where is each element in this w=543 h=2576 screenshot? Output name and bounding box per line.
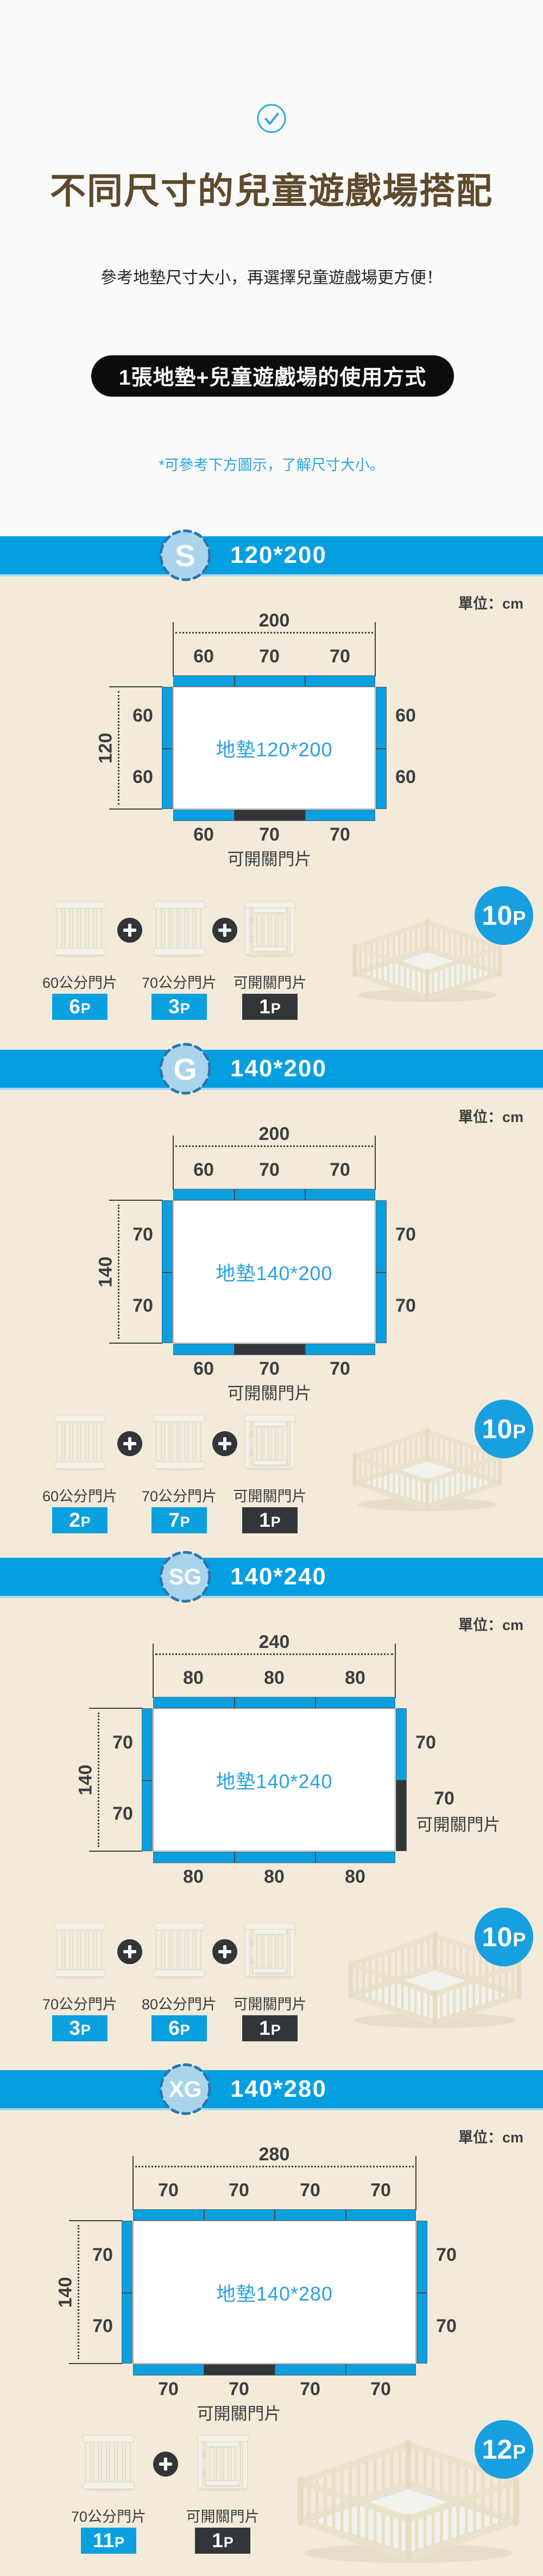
part-count-badge: 3P [52, 2015, 108, 2041]
part-count-number: 7 [168, 1507, 180, 1533]
section-body-xg: 單位：cm28070707070地墊140*280707070701407070… [0, 2110, 543, 2576]
page-title: 不同尺寸的兒童遊戲場搭配 [0, 162, 543, 214]
fence-bar-divider [305, 810, 306, 820]
fence-panel-icon [53, 1922, 107, 1979]
mat-size-label: 地墊140*280 [216, 2278, 333, 2307]
top-segment-label: 70 [158, 2180, 179, 2201]
left-dimension-tick-bottom [69, 2363, 122, 2364]
part-count-badge: 1P [195, 2528, 250, 2554]
section-s: S120*200單位：cm200607070地墊120*200606060601… [0, 536, 543, 1050]
size-badge-xg: XG [157, 2061, 213, 2117]
mat-rect: 地墊140*240 [153, 1708, 395, 1851]
fence-panel-icon [152, 1414, 206, 1471]
fence-door-icon [243, 1922, 297, 1979]
part-count-number: 1 [259, 994, 270, 1020]
unit-label: 單位：cm [458, 2126, 523, 2147]
right-fence-bar [376, 1200, 387, 1343]
part-count-suffix: P [180, 2017, 190, 2043]
part-count-badge: 11P [81, 2528, 136, 2554]
fence-bar-divider [122, 2292, 132, 2293]
size-badge-g: G [157, 1041, 213, 1096]
bottom-segment-label: 70 [370, 2379, 391, 2400]
top-dimension-total: 280 [259, 2144, 290, 2165]
top-dimension-dotted-line [175, 1145, 373, 1147]
left-segment-label: 70 [92, 2316, 113, 2337]
total-panel-count-badge: 10P [475, 1908, 533, 1966]
right-segment-label: 70 [436, 2316, 457, 2337]
size-badge-letter: XG [157, 2061, 213, 2117]
part-count-suffix: P [271, 1509, 281, 1535]
fence-bar-divider [376, 748, 386, 749]
top-segment-label: 70 [300, 2180, 320, 2201]
total-count-number: 10 [482, 886, 513, 945]
unit-label: 單位：cm [458, 1613, 523, 1634]
section-band-g: G140*200 [0, 1050, 543, 1090]
fence-bar-divider [417, 2292, 427, 2293]
size-badge-letter: SG [157, 1549, 213, 1604]
left-dimension-total: 120 [96, 733, 117, 764]
product-infographic-page: 不同尺寸的兒童遊戲場搭配 參考地墊尺寸大小，再選擇兒童遊戲場更方便！ 1張地墊+… [0, 0, 543, 2576]
section-body-s: 單位：cm200607070地墊120*20060606060120607070… [0, 576, 543, 1050]
fence-bar-divider [305, 676, 306, 686]
usage-pill: 1張地墊+兒童遊戲場的使用方式 [91, 355, 454, 397]
part-count-suffix: P [81, 995, 91, 1021]
top-dimension-tick-right [415, 2156, 416, 2210]
top-dimension-tick-right [395, 1644, 396, 1698]
part-count-number: 6 [69, 994, 80, 1020]
size-badge-letter: S [157, 528, 213, 583]
mat-size-label: 地墊120*200 [216, 734, 332, 762]
left-fence-bar [122, 2221, 132, 2364]
unit-label: 單位：cm [458, 592, 523, 613]
section-body-sg: 單位：cm240808080地墊140*24070707070可開關門片1408… [0, 1598, 543, 2070]
fence-bar-divider [234, 1697, 235, 1708]
intro-header: 不同尺寸的兒童遊戲場搭配 參考地墊尺寸大小，再選擇兒童遊戲場更方便！ 1張地墊+… [0, 0, 543, 536]
right-door-size-label: 70 [434, 1788, 454, 1809]
mat-rect: 地墊120*200 [173, 687, 375, 809]
part-name-label: 60公分門片 [42, 1484, 117, 1506]
part-count-badge: 6P [151, 2015, 207, 2041]
bottom-segment-label: 70 [158, 2379, 179, 2400]
bottom-segment-label: 70 [229, 2379, 249, 2400]
left-dimension-dotted-line [98, 1713, 99, 1847]
left-dimension-dotted-line [78, 2225, 79, 2359]
fence-panel-icon [152, 900, 206, 958]
left-segment-label: 60 [132, 705, 153, 726]
mat-size-label: 地墊140*240 [216, 1766, 332, 1794]
left-segment-label: 70 [112, 1732, 133, 1753]
total-count-number: 12 [482, 2420, 513, 2479]
top-segment-label: 60 [193, 1159, 214, 1181]
fence-bar-divider [376, 1272, 386, 1273]
top-segment-label: 70 [229, 2180, 249, 2201]
bottom-segment-label: 70 [259, 1358, 280, 1380]
part-count-badge: 3P [151, 994, 207, 1020]
top-dimension-tick-right [375, 622, 376, 676]
bottom-segment-label: 60 [193, 1358, 214, 1380]
check-circle-icon [256, 103, 287, 134]
part-count-number: 1 [212, 2528, 223, 2554]
top-fence-bar [173, 675, 375, 687]
fence-bar-divider [274, 2210, 275, 2220]
fence-panel-icon [53, 1414, 107, 1471]
fence-bar-divider [142, 1780, 152, 1781]
size-sections-container: S120*200單位：cm200607070地墊120*200606060601… [0, 536, 543, 2576]
section-size-title: 140*200 [230, 1055, 327, 1082]
bottom-door-segment [235, 810, 305, 820]
reference-note: *可參考下方圖示，了解尺寸大小。 [0, 453, 543, 474]
right-fence-bar [376, 687, 387, 809]
bottom-segment-label: 70 [259, 824, 280, 845]
fence-bar-divider [234, 1852, 235, 1863]
top-segment-label: 60 [193, 646, 214, 667]
plus-icon [153, 2452, 178, 2477]
part-name-label: 60公分門片 [42, 971, 117, 992]
total-count-suffix: P [513, 1910, 526, 1969]
total-count-suffix: P [513, 2423, 526, 2481]
left-segment-label: 70 [112, 1803, 133, 1825]
part-count-suffix: P [81, 2017, 91, 2043]
fence-bar-divider [274, 2365, 275, 2375]
size-badge-letter: G [157, 1041, 213, 1096]
right-door-name-label: 可開關門片 [416, 1811, 501, 1835]
bottom-door-name-label: 可開關門片 [228, 845, 312, 870]
total-count-suffix: P [513, 889, 526, 948]
part-count-suffix: P [224, 2529, 233, 2555]
top-dimension-total: 200 [259, 1124, 290, 1145]
section-xg: XG140*280單位：cm28070707070地墊140*280707070… [0, 2070, 543, 2576]
unit-label: 單位：cm [458, 1105, 523, 1126]
plus-icon [212, 1939, 237, 1964]
right-segment-label: 60 [395, 705, 416, 726]
top-segment-label: 70 [370, 2180, 391, 2201]
bottom-fence-bar [173, 810, 375, 821]
part-count-badge: 1P [242, 2015, 298, 2041]
fence-bar-divider [234, 676, 235, 686]
fence-bar-divider [345, 2210, 346, 2220]
top-dimension-tick-left [173, 1136, 174, 1190]
total-panel-count-badge: 12P [475, 2420, 533, 2479]
fence-bar-divider [345, 2365, 346, 2375]
top-segment-label: 70 [330, 1159, 350, 1181]
top-dimension-tick-left [132, 2156, 134, 2210]
fence-panel-icon [81, 2434, 136, 2492]
left-dimension-total: 140 [55, 2277, 77, 2308]
size-badge-sg: SG [157, 1549, 213, 1604]
mat-rect: 地墊140*200 [173, 1200, 375, 1343]
part-count-suffix: P [180, 995, 190, 1021]
part-count-number: 3 [69, 2015, 80, 2041]
part-name-label: 80公分門片 [142, 1992, 217, 2014]
bottom-door-name-label: 可開關門片 [228, 1380, 312, 1404]
bottom-door-segment [235, 1344, 305, 1355]
bottom-fence-bar [153, 1852, 395, 1863]
part-count-number: 2 [69, 1507, 80, 1533]
fence-bar-divider [305, 1189, 306, 1200]
mat-size-label: 地墊140*200 [216, 1258, 332, 1286]
left-dimension-tick-bottom [109, 1343, 162, 1344]
top-dimension-tick-left [173, 622, 174, 676]
fence-panel-icon [53, 900, 107, 958]
part-count-suffix: P [180, 1509, 190, 1535]
top-fence-bar [173, 1189, 375, 1200]
section-size-title: 140*240 [230, 1563, 327, 1590]
section-band-sg: SG140*240 [0, 1558, 543, 1598]
left-segment-label: 60 [132, 767, 153, 788]
top-dimension-dotted-line [155, 1653, 393, 1655]
part-name-label: 可開關門片 [233, 1992, 307, 2014]
top-segment-label: 70 [259, 646, 280, 667]
plus-icon [117, 1939, 142, 1964]
part-name-label: 可開關門片 [186, 2505, 260, 2526]
section-sg: SG140*240單位：cm240808080地墊140*24070707070… [0, 1558, 543, 2070]
part-name-label: 可開關門片 [233, 971, 307, 992]
right-segment-label: 60 [395, 767, 416, 788]
part-count-number: 6 [168, 2015, 180, 2041]
top-segment-label: 80 [345, 1668, 365, 1689]
left-dimension-tick-top [69, 2220, 122, 2221]
top-dimension-tick-left [153, 1644, 154, 1698]
top-dimension-tick-right [375, 1136, 376, 1190]
left-dimension-tick-bottom [89, 1851, 142, 1852]
part-count-suffix: P [115, 2529, 124, 2555]
left-dimension-dotted-line [118, 691, 119, 805]
part-count-number: 1 [259, 2015, 270, 2041]
usage-pill-text: 1張地墊+兒童遊戲場的使用方式 [119, 361, 426, 391]
plus-icon [212, 918, 237, 943]
fence-bar-divider [315, 1697, 316, 1708]
fence-bar-divider [162, 748, 172, 749]
fence-bar-divider [162, 1272, 172, 1273]
left-dimension-total: 140 [75, 1765, 97, 1796]
bottom-door-name-label: 可開關門片 [197, 2400, 281, 2424]
total-panel-count-badge: 10P [475, 886, 533, 945]
part-name-label: 70公分門片 [142, 971, 217, 992]
bottom-segment-label: 80 [345, 1866, 365, 1888]
fence-door-icon [195, 2434, 250, 2492]
fence-door-icon [243, 900, 297, 958]
part-count-badge: 7P [151, 1507, 207, 1533]
section-size-title: 120*200 [230, 542, 327, 569]
part-count-suffix: P [271, 2017, 281, 2043]
part-count-number: 1 [259, 1507, 270, 1533]
bottom-fence-bar [173, 1344, 375, 1355]
fence-bar-divider [315, 1852, 316, 1863]
right-fence-bar [396, 1708, 407, 1851]
left-fence-bar [162, 687, 173, 809]
total-count-suffix: P [513, 1402, 526, 1461]
bottom-segment-label: 80 [264, 1866, 285, 1888]
left-segment-label: 70 [132, 1295, 153, 1317]
part-count-number: 11 [93, 2528, 114, 2554]
part-name-label: 可開關門片 [233, 1484, 307, 1506]
section-band-s: S120*200 [0, 536, 543, 576]
part-count-number: 3 [168, 994, 180, 1020]
section-g: G140*200單位：cm200607070地墊140*200707070701… [0, 1050, 543, 1558]
part-name-label: 70公分門片 [71, 2505, 146, 2526]
page-subtitle: 參考地墊尺寸大小，再選擇兒童遊戲場更方便！ [0, 264, 543, 288]
top-dimension-dotted-line [135, 2166, 414, 2167]
top-fence-bar [133, 2209, 416, 2221]
right-fence-bar [416, 2221, 427, 2364]
left-dimension-total: 140 [96, 1257, 117, 1288]
fence-bar-divider [305, 1344, 306, 1355]
top-segment-label: 70 [330, 646, 350, 667]
size-badge-s: S [157, 528, 213, 583]
right-segment-label: 70 [395, 1295, 416, 1317]
left-segment-label: 70 [92, 2245, 113, 2266]
section-size-title: 140*280 [230, 2076, 327, 2103]
left-dimension-tick-top [109, 1200, 162, 1201]
top-dimension-total: 240 [259, 1632, 290, 1653]
left-dimension-dotted-line [118, 1205, 119, 1339]
right-door-segment [396, 1781, 406, 1851]
top-dimension-total: 200 [259, 610, 290, 631]
right-segment-label: 70 [436, 2245, 457, 2266]
right-segment-label: 70 [395, 1224, 416, 1245]
total-panel-count-badge: 10P [475, 1400, 533, 1458]
left-segment-label: 70 [132, 1224, 153, 1245]
top-segment-label: 80 [264, 1668, 285, 1689]
section-body-g: 單位：cm200607070地墊140*20070707070140607070… [0, 1090, 543, 1558]
part-count-badge: 1P [242, 994, 298, 1020]
left-dimension-tick-top [89, 1708, 142, 1709]
top-dimension-dotted-line [175, 632, 373, 634]
fence-bar-divider [234, 1189, 235, 1200]
top-fence-bar [153, 1697, 395, 1708]
right-segment-label: 70 [415, 1732, 436, 1753]
fence-bar-divider [204, 2210, 205, 2220]
total-count-number: 10 [482, 1908, 513, 1966]
top-segment-label: 70 [259, 1159, 280, 1181]
left-fence-bar [142, 1708, 153, 1851]
bottom-segment-label: 70 [300, 2379, 320, 2400]
part-count-suffix: P [81, 1509, 91, 1535]
mat-rect: 地墊140*280 [133, 2221, 416, 2364]
part-count-badge: 6P [52, 994, 108, 1020]
left-dimension-tick-top [109, 686, 162, 687]
left-fence-bar [162, 1200, 173, 1343]
plus-icon [117, 918, 142, 943]
plus-icon [212, 1431, 237, 1456]
part-count-suffix: P [271, 995, 281, 1021]
part-count-badge: 2P [52, 1507, 108, 1533]
fence-panel-icon [152, 1922, 206, 1979]
bottom-segment-label: 80 [183, 1866, 204, 1888]
part-name-label: 70公分門片 [42, 1992, 117, 2014]
plus-icon [117, 1431, 142, 1456]
part-name-label: 70公分門片 [142, 1484, 217, 1506]
section-band-xg: XG140*280 [0, 2070, 543, 2110]
bottom-fence-bar [133, 2364, 416, 2376]
bottom-segment-label: 70 [330, 1358, 350, 1380]
bottom-door-segment [204, 2365, 275, 2375]
bottom-segment-label: 70 [330, 824, 350, 845]
part-count-badge: 1P [242, 1507, 298, 1533]
top-segment-label: 80 [183, 1668, 204, 1689]
fence-door-icon [243, 1414, 297, 1471]
total-count-number: 10 [482, 1400, 513, 1458]
bottom-segment-label: 60 [193, 824, 214, 845]
left-dimension-tick-bottom [109, 808, 162, 810]
